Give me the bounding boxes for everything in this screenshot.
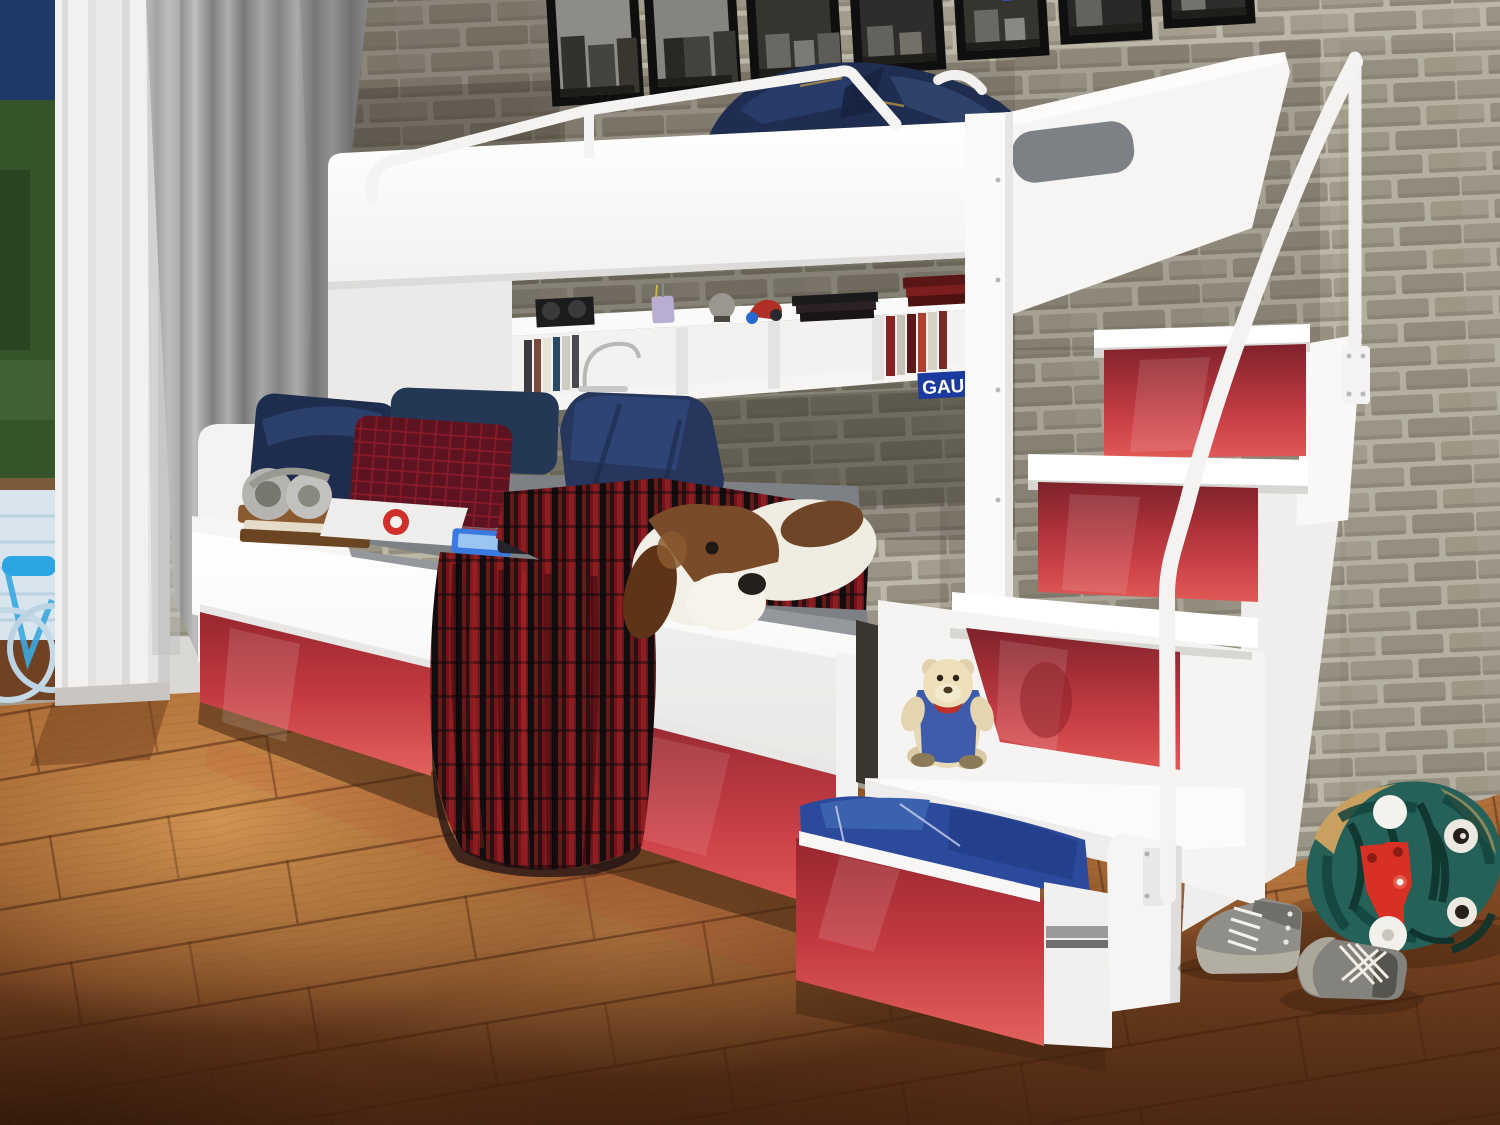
svg-text:GAU: GAU — [922, 376, 965, 399]
